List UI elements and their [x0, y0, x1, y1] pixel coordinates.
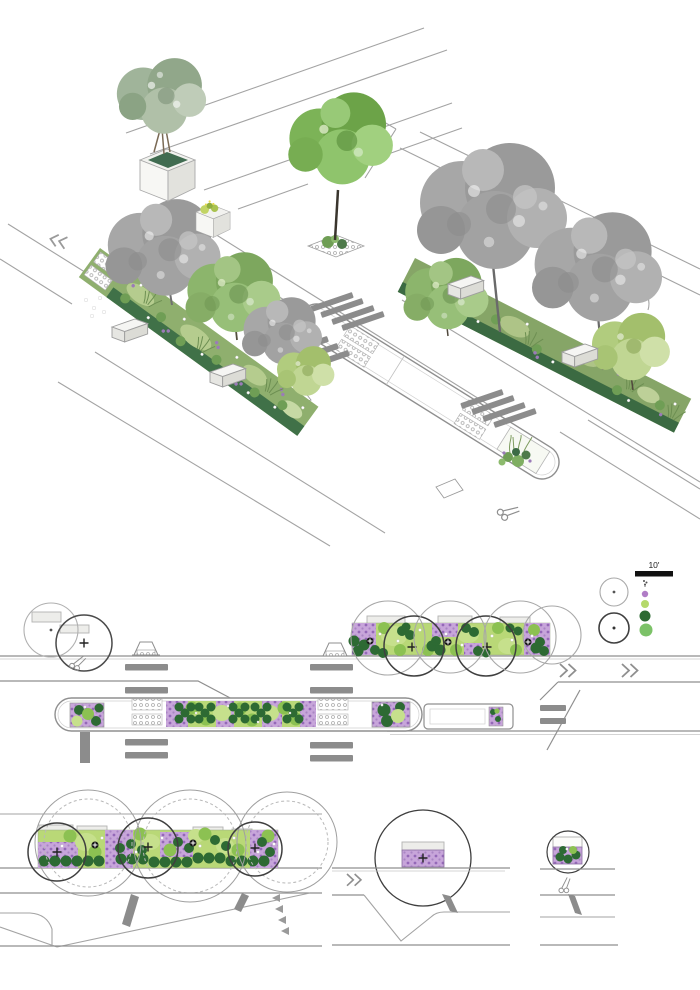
streetscape-design-sheet: 10' — [0, 0, 700, 990]
bench-plan — [60, 625, 89, 633]
scale-bar — [635, 571, 673, 577]
plan-median-island — [55, 698, 422, 731]
medium-green-shrub-symbol — [640, 624, 653, 637]
detail-left — [0, 790, 337, 947]
detail-right — [540, 831, 618, 945]
detail-left-strip — [38, 825, 278, 868]
chevron-left-icon — [49, 233, 68, 249]
detail-left-roads — [0, 893, 322, 947]
light-green-planting-symbol — [641, 600, 649, 608]
bench-plan — [553, 837, 582, 848]
scissors-cutline-icon — [555, 876, 576, 896]
axonometric-rendering-view — [0, 28, 700, 546]
design-drawing: 10' — [0, 0, 700, 990]
plan-details — [0, 790, 618, 947]
white-flower-dots — [84, 296, 106, 318]
plan-median-segment-2 — [424, 704, 513, 729]
bench-iso — [112, 319, 148, 342]
detail-right-roads — [540, 869, 618, 945]
purple-perennial-symbol — [642, 591, 648, 597]
chevron-right-marking — [622, 664, 638, 677]
chevron-right-marking — [560, 664, 576, 677]
existing-tree-center-dot — [613, 591, 616, 594]
scissors-cutline-icon — [496, 502, 521, 523]
existing-tree-trunk — [92, 842, 99, 849]
scissors-cutline-icon — [68, 656, 87, 672]
bike-rack-icon — [132, 642, 160, 655]
chevron-right-marking — [347, 874, 361, 886]
bike-rack-icon — [321, 643, 349, 656]
plan-topleft-trees — [24, 603, 112, 672]
street-tree — [288, 92, 393, 257]
existing-tree-trunk — [190, 840, 197, 847]
proposed-tree-center-dot — [613, 627, 616, 630]
median-planting-strip — [166, 701, 316, 727]
existing-tree-trunk — [367, 638, 374, 645]
scale-label: 10' — [648, 560, 659, 570]
existing-tree-trunk — [525, 639, 532, 646]
plan-north-planting-strip — [349, 601, 582, 676]
sprig-symbol-icon — [643, 580, 648, 587]
small-planter-cube — [196, 200, 230, 237]
planter-cube-tree — [117, 58, 206, 201]
detail-middle — [332, 810, 510, 945]
dark-green-shrub-symbol — [640, 611, 651, 622]
existing-tree-trunk — [445, 639, 452, 646]
bench-plan — [32, 612, 61, 622]
plan-view-main: 10' — [0, 560, 700, 763]
legend: 10' — [599, 560, 673, 643]
